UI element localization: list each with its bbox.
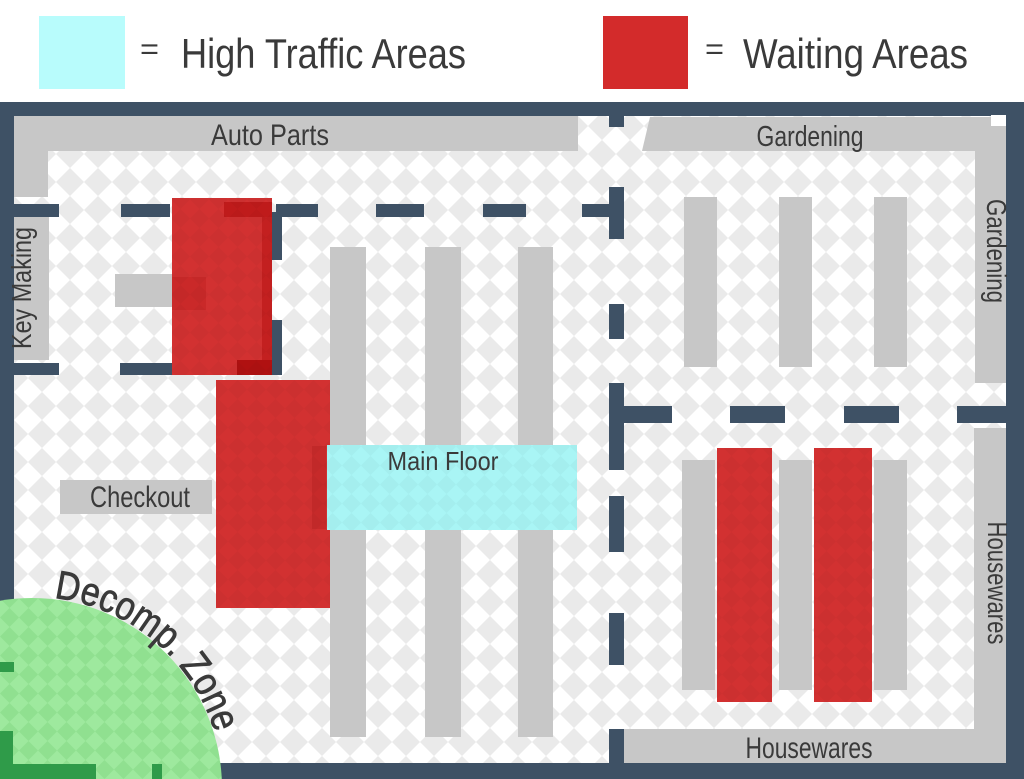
svg-text:Auto Parts: Auto Parts bbox=[211, 119, 329, 152]
svg-text:=: = bbox=[140, 33, 159, 66]
svg-text:Key Making: Key Making bbox=[6, 227, 37, 349]
svg-text:Waiting Areas: Waiting Areas bbox=[743, 30, 968, 77]
svg-text:High Traffic Areas: High Traffic Areas bbox=[181, 30, 466, 77]
svg-text:Gardening: Gardening bbox=[757, 121, 864, 153]
svg-text:Housewares: Housewares bbox=[746, 732, 873, 765]
svg-text:Main Floor: Main Floor bbox=[388, 446, 499, 476]
svg-text:Housewares: Housewares bbox=[982, 522, 1013, 645]
svg-text:=: = bbox=[705, 33, 724, 66]
svg-text:Gardening: Gardening bbox=[981, 199, 1012, 303]
svg-text:Checkout: Checkout bbox=[90, 481, 191, 514]
